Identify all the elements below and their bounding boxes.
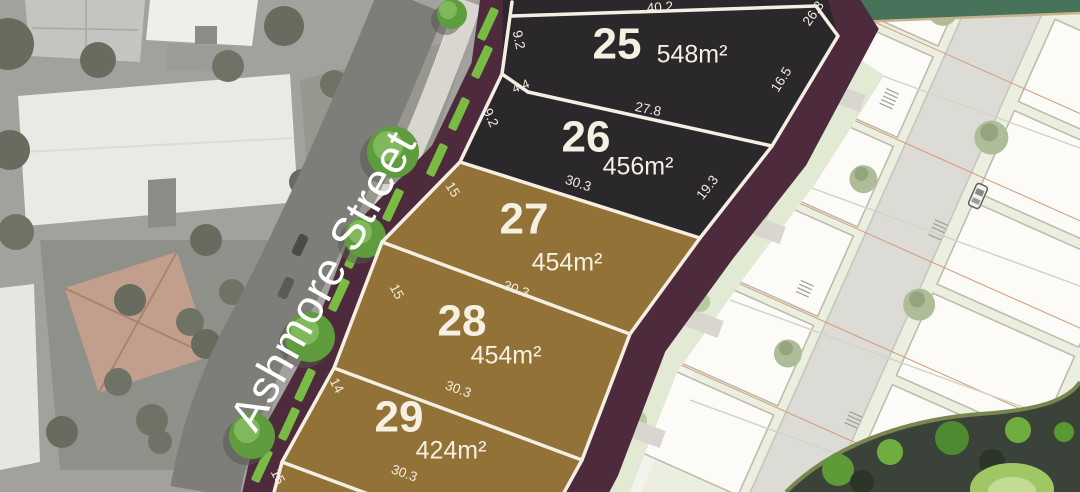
estate-masterplan-map: 25 548m² 26 456m² 27 454m² 28 454m² 29 4… bbox=[0, 0, 1080, 492]
tree-icon bbox=[822, 454, 854, 486]
tree-icon bbox=[1054, 422, 1074, 442]
lot-28-number: 28 bbox=[438, 297, 487, 346]
lot-25-number: 25 bbox=[593, 20, 642, 69]
lot-25-dim-top: 40.2 bbox=[646, 0, 673, 15]
masterplan-svg: 25 548m² 26 456m² 27 454m² 28 454m² 29 4… bbox=[0, 0, 1080, 492]
lot-28-area: 454m² bbox=[471, 342, 542, 370]
lot-25-area: 548m² bbox=[657, 41, 728, 69]
lot-27-number: 27 bbox=[500, 195, 549, 244]
tree-icon bbox=[935, 421, 969, 455]
lot-27-area: 454m² bbox=[532, 249, 603, 277]
lot-29-number: 29 bbox=[375, 393, 424, 442]
lot-29-area: 424m² bbox=[416, 437, 487, 465]
building-slab bbox=[0, 284, 40, 470]
tree-icon bbox=[877, 439, 903, 465]
lot-26-area: 456m² bbox=[603, 153, 674, 181]
tree-icon bbox=[1005, 417, 1031, 443]
